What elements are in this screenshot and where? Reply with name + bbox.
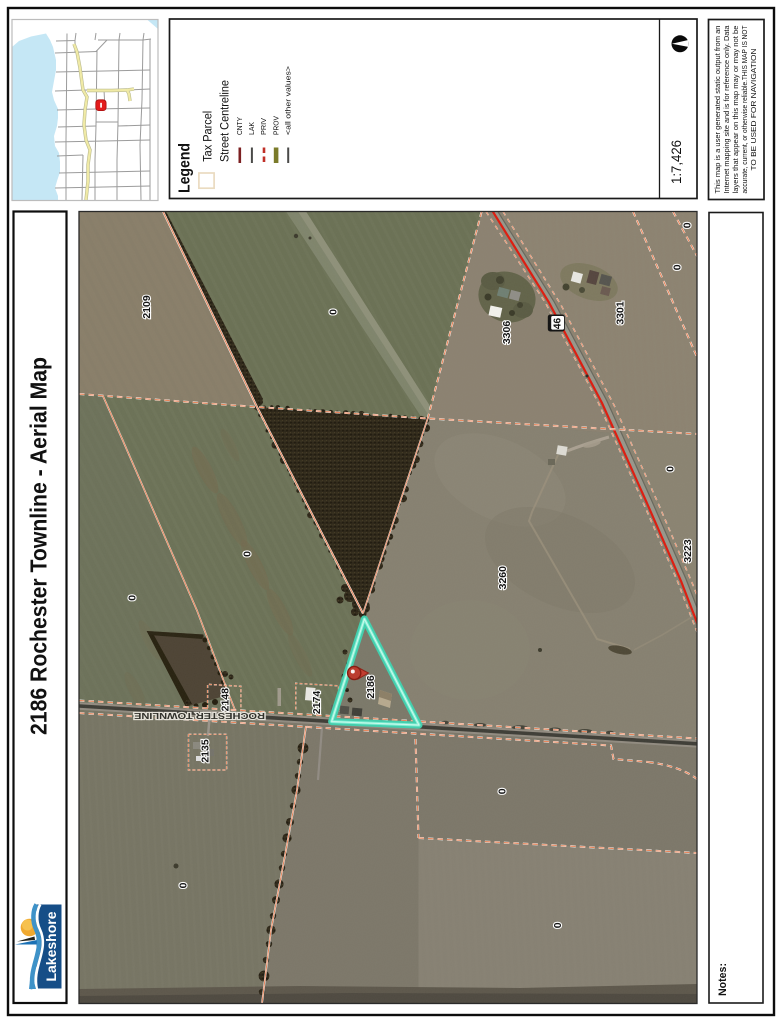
svg-text:Street Centreline: Street Centreline	[219, 80, 231, 162]
svg-text:PRIV: PRIV	[259, 117, 268, 135]
svg-text:Lakeshore: Lakeshore	[43, 911, 59, 981]
svg-text:Notes:: Notes:	[717, 963, 729, 996]
svg-text:Internet mapping site and is f: Internet mapping site and is for referen…	[722, 25, 731, 194]
svg-text:Tax Parcel: Tax Parcel	[203, 111, 215, 162]
svg-text:layers that appear on this map: layers that appear on this map may or ma…	[731, 26, 740, 194]
svg-text:Legend: Legend	[177, 143, 194, 193]
svg-text:<all other values>: <all other values>	[283, 65, 292, 135]
svg-text:1:7,426: 1:7,426	[668, 140, 684, 184]
svg-text:CNTY: CNTY	[235, 117, 244, 135]
svg-text:PROV: PROV	[271, 115, 280, 135]
svg-text:LAK: LAK	[247, 122, 256, 135]
svg-text:2186 Rochester Townline - Aeri: 2186 Rochester Townline - Aerial Map	[26, 357, 52, 735]
svg-text:This map is a user generated s: This map is a user generated static outp…	[713, 26, 722, 194]
svg-text:accurate, current, or otherwis: accurate, current, or otherwise reliable…	[740, 25, 749, 193]
svg-text:TO BE USED FOR NAVIGATION: TO BE USED FOR NAVIGATION	[749, 49, 758, 171]
